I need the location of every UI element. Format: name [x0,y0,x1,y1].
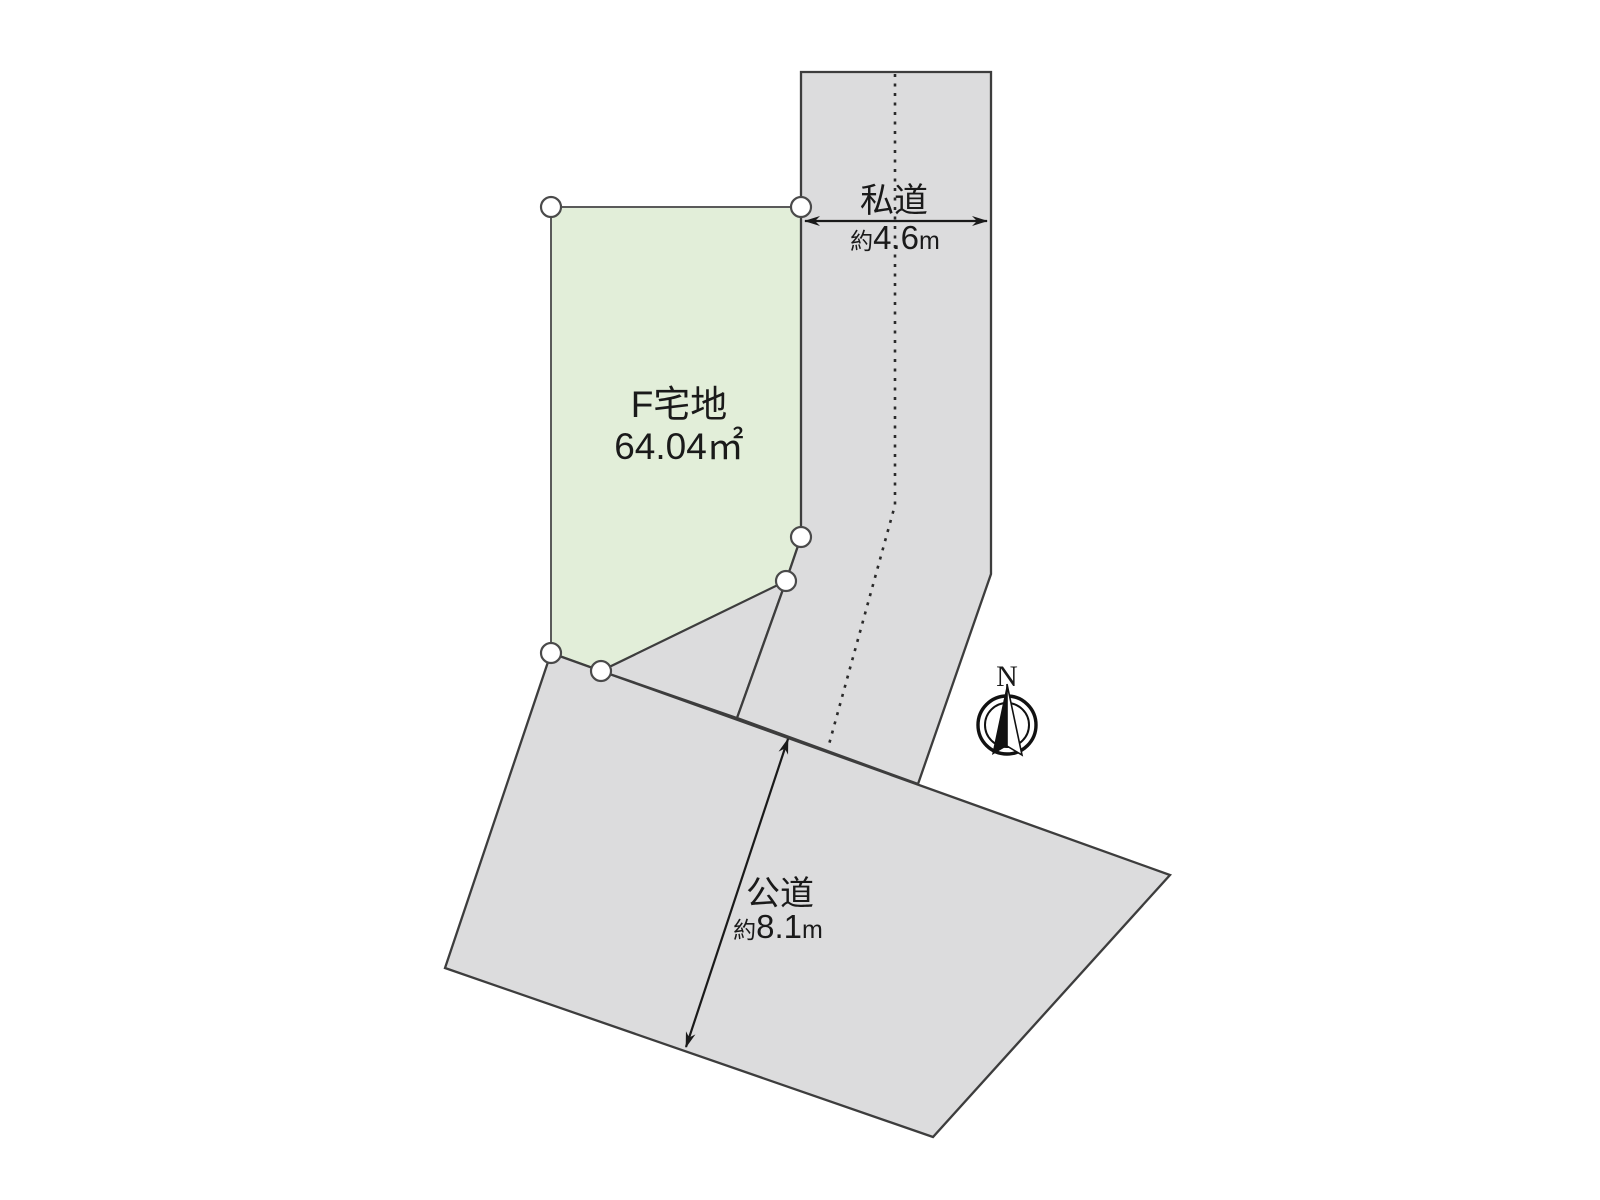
private-road-name-label: 私道 [860,182,928,220]
public-road-width-prefix: 約 [733,917,756,943]
survey-point-circle-icon [791,197,811,217]
survey-point-circle-icon [541,643,561,663]
plot-name-label: F宅地 [631,384,728,425]
survey-point-circle-icon [776,571,796,591]
plot-area-label: 64.04㎡ [614,425,744,467]
survey-point-circle-icon [791,527,811,547]
public-road-width-value: 8.1 [756,908,802,945]
private-road-width-unit: m [919,227,940,255]
public-road-width-unit: m [802,916,823,944]
land-plot-diagram: N F宅地 64.04㎡ 私道 約4.6m 公道 約8.1m [0,0,1600,1200]
diagram-canvas: N F宅地 64.04㎡ 私道 約4.6m 公道 約8.1m [0,0,1600,1200]
private-road-width-prefix: 約 [850,228,873,254]
private-road-width-value: 4.6 [873,219,919,256]
compass-north-label: N [996,660,1018,693]
survey-point-circle-icon [591,661,611,681]
survey-point-circle-icon [541,197,561,217]
